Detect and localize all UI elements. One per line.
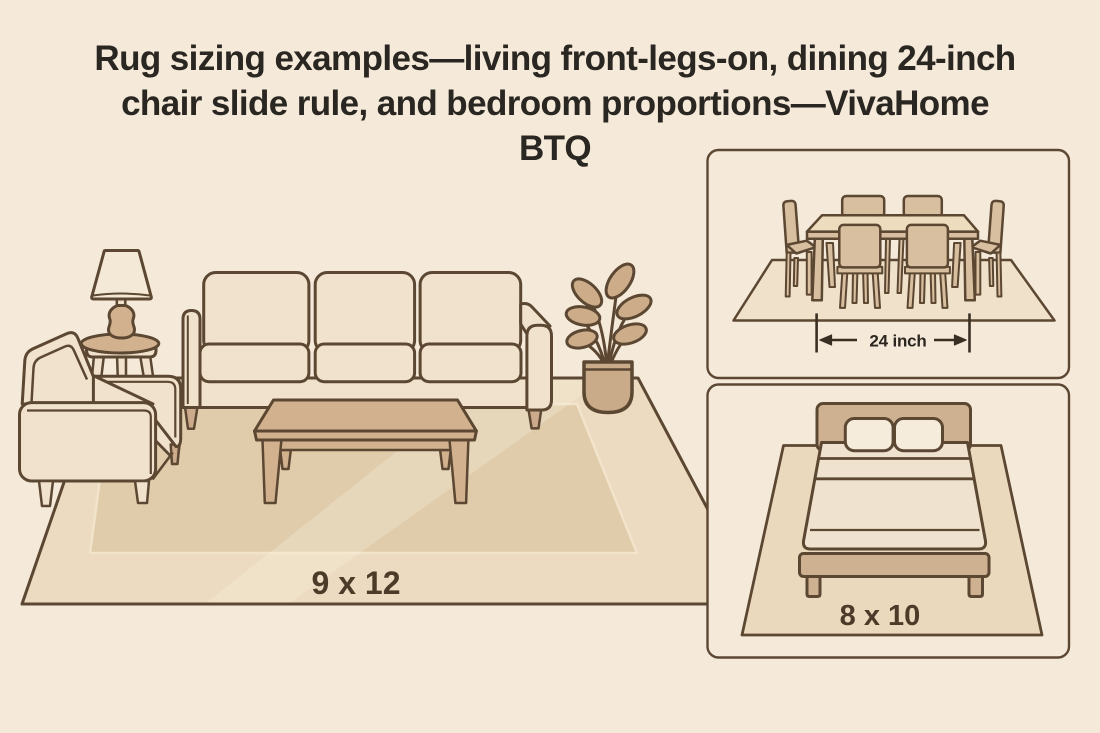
svg-text:24 inch: 24 inch [869,332,926,351]
svg-text:9 x 12: 9 x 12 [312,565,401,601]
svg-text:Rug sizing examples—living fro: Rug sizing examples—living front-legs-on… [94,39,1015,78]
svg-text:BTQ: BTQ [519,129,591,168]
svg-text:chair slide rule, and bedroom: chair slide rule, and bedroom proportion… [121,84,989,123]
svg-text:8 x 10: 8 x 10 [840,600,921,632]
